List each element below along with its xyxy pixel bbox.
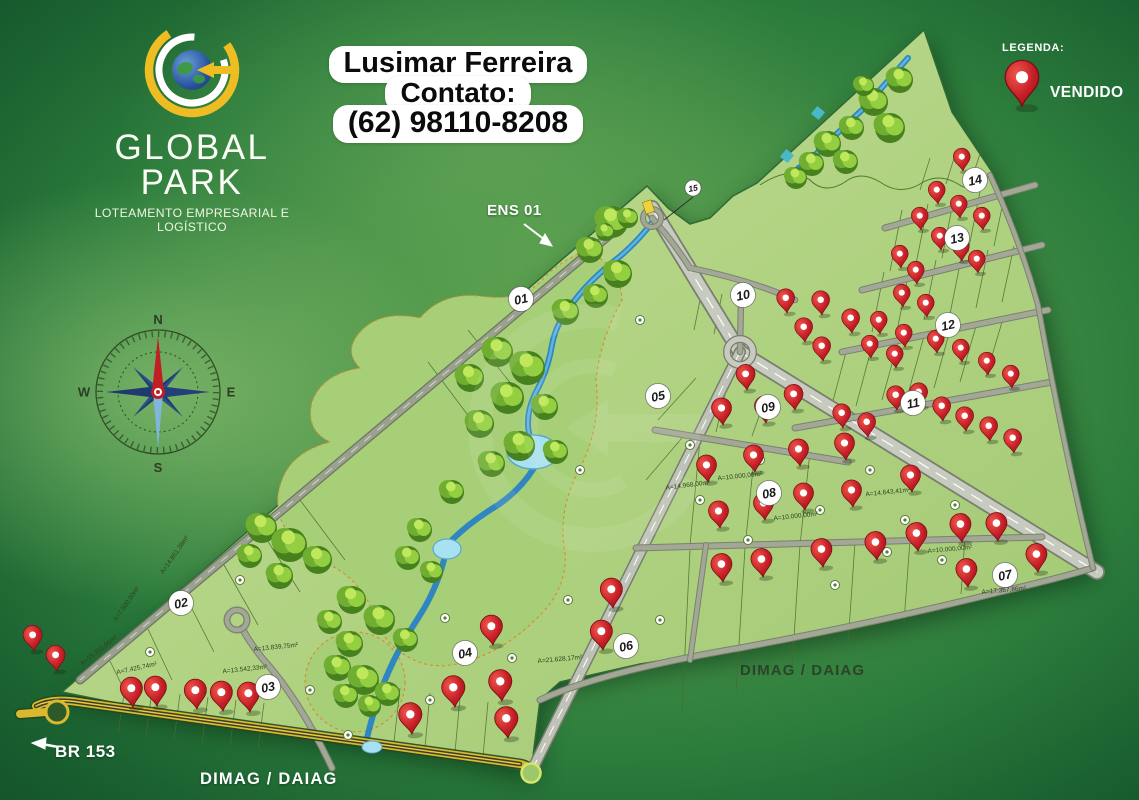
svg-text:S: S [154, 460, 163, 475]
logo-subtitle: LOTEAMENTO EMPRESARIAL E LOGÍSTICO [58, 206, 326, 234]
svg-text:02: 02 [173, 595, 190, 612]
sold-pin-icon [45, 645, 66, 676]
global-park-logo-icon [127, 18, 257, 126]
contact-box: Lusimar Ferreira Contato: (62) 98110-820… [328, 46, 588, 143]
water-tree-icon [811, 106, 825, 120]
sold-pin-icon [22, 625, 43, 656]
lot-area-label: A=7.500,00m² [112, 585, 142, 623]
global-park-poster: A=15.310,06m²A=14.861,38m²A=7.500,00m²A=… [0, 0, 1139, 800]
compass-rose: NESW [78, 312, 236, 475]
svg-text:15: 15 [688, 182, 699, 194]
road-label-ens-01: ENS 01 [487, 202, 542, 219]
entrance-marker: 15 [684, 179, 703, 198]
svg-text:10: 10 [735, 287, 752, 304]
svg-text:12: 12 [940, 317, 957, 334]
road-label-dimag-right: DIMAG / DAIAG [740, 662, 865, 679]
logo: GLOBAL PARK LOTEAMENTO EMPRESARIAL E LOG… [58, 18, 326, 234]
legend: LEGENDA: VENDIDO [1002, 42, 1134, 112]
svg-text:E: E [227, 385, 236, 400]
svg-text:08: 08 [761, 485, 778, 502]
svg-text:01: 01 [513, 291, 530, 308]
svg-text:14: 14 [967, 172, 984, 189]
sold-pin-icon [1002, 56, 1046, 112]
svg-text:W: W [78, 385, 91, 400]
contact-phone: (62) 98110-8208 [333, 105, 583, 143]
legend-title: LEGENDA: [1002, 42, 1134, 54]
logo-title: GLOBAL PARK [58, 130, 326, 200]
legend-sold-label: VENDIDO [1050, 84, 1123, 102]
svg-text:09: 09 [760, 399, 777, 416]
svg-text:13: 13 [949, 230, 966, 247]
svg-text:N: N [153, 312, 162, 327]
road-label-dimag-bottom: DIMAG / DAIAG [200, 770, 338, 789]
svg-text:03: 03 [260, 679, 277, 696]
svg-text:04: 04 [457, 645, 474, 662]
lot-area-label: A=14.861,38m² [159, 534, 191, 575]
road-label-br-153: BR 153 [55, 742, 116, 762]
